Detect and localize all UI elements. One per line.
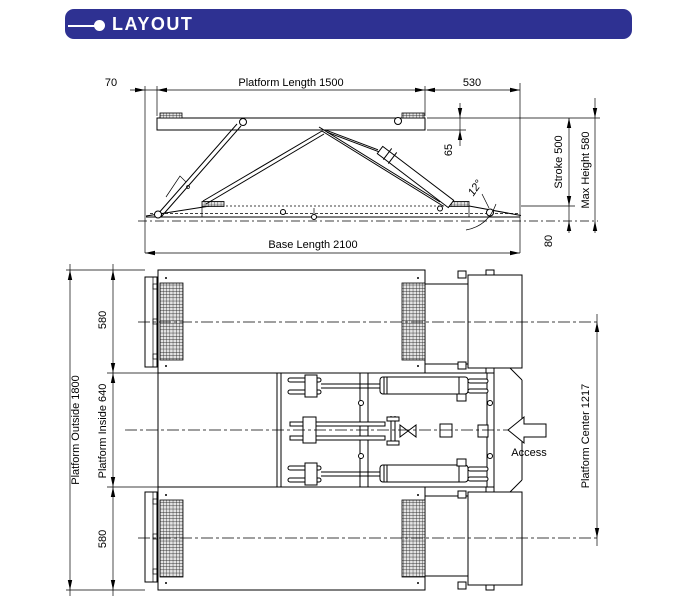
dim-platform-thickness: 65 bbox=[443, 144, 455, 156]
top-view: Platform Outside 1800 580 Platform Insid… bbox=[66, 264, 599, 596]
dim-platform-outside: Platform Outside 1800 bbox=[70, 375, 82, 484]
dim-platform-length: Platform Length 1500 bbox=[238, 77, 343, 89]
dim-max-height: Max Height 580 bbox=[580, 131, 592, 208]
access-arrow-icon bbox=[508, 417, 546, 443]
dim-lowered-height: 80 bbox=[543, 235, 555, 247]
dim-width-top: 580 bbox=[97, 311, 109, 329]
cylinder-bottom bbox=[288, 459, 488, 485]
access-label: Access bbox=[511, 447, 547, 459]
dim-width-bottom: 580 bbox=[97, 530, 109, 548]
center-assembly bbox=[290, 416, 488, 445]
dim-right-overhang: 530 bbox=[463, 77, 481, 89]
dim-base-length: Base Length 2100 bbox=[268, 239, 357, 251]
dim-platform-center: Platform Center 1217 bbox=[580, 384, 592, 489]
cylinder-top bbox=[288, 375, 488, 401]
dim-stroke: Stroke 500 bbox=[553, 135, 565, 188]
side-view: 70 Platform Length 1500 530 Base Length … bbox=[105, 77, 600, 255]
dim-platform-inside: Platform Inside 640 bbox=[97, 384, 109, 479]
layout-drawing: 70 Platform Length 1500 530 Base Length … bbox=[0, 0, 700, 608]
dim-offset-left: 70 bbox=[105, 77, 117, 89]
